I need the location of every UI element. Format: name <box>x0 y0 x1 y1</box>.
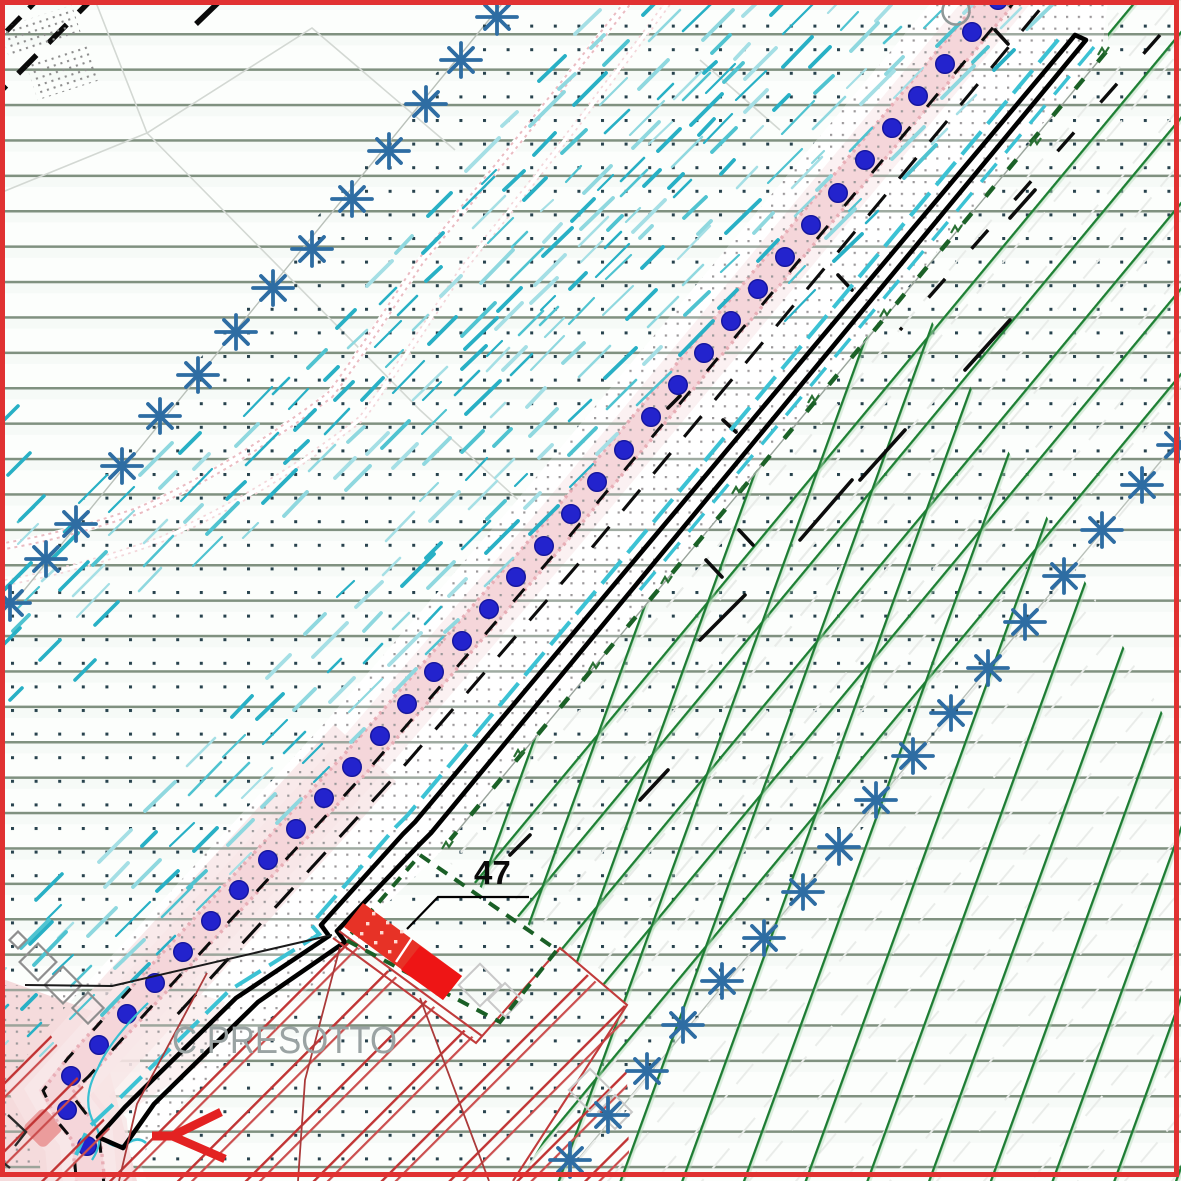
svg-text:47: 47 <box>474 854 511 891</box>
svg-text:C.PRESOTTO: C.PRESOTTO <box>172 1020 397 1062</box>
